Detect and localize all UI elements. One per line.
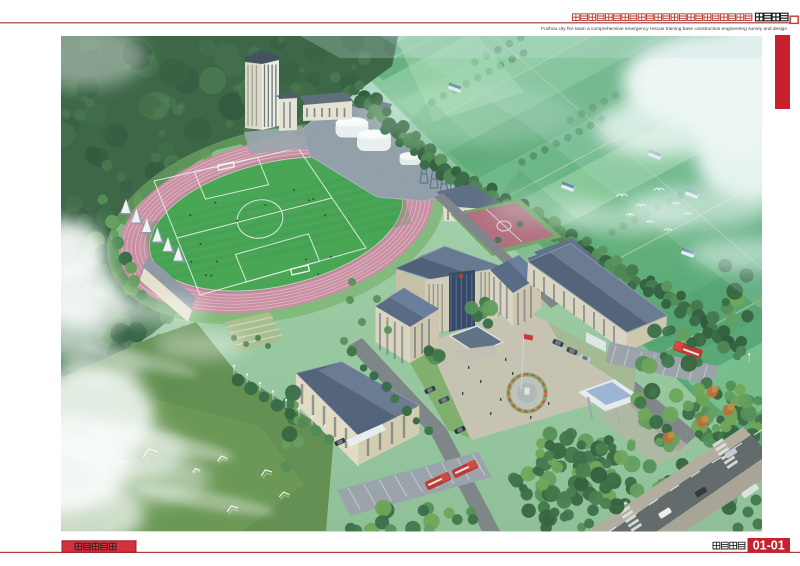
svg-text:Fuzhou city fire team a compre: Fuzhou city fire team a comprehensive em…: [541, 26, 787, 32]
svg-text:01-01: 01-01: [753, 539, 785, 553]
